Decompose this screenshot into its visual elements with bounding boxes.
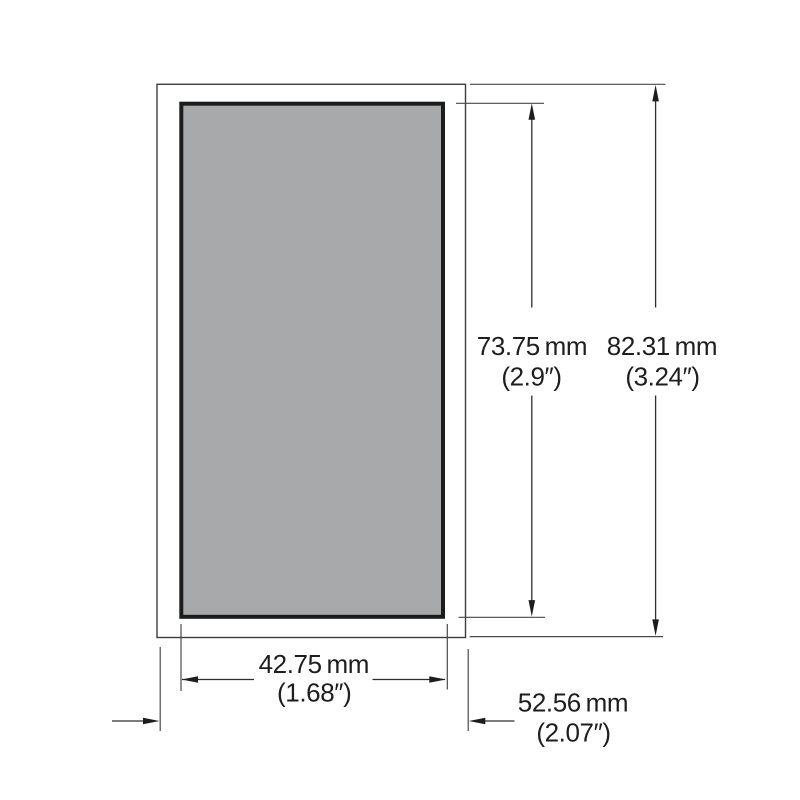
svg-text:52.56 mm: 52.56 mm: [518, 688, 628, 718]
svg-text:82.31 mm: 82.31 mm: [607, 331, 717, 361]
svg-text:(2.9″): (2.9″): [501, 362, 561, 392]
svg-text:(3.24″): (3.24″): [625, 362, 699, 392]
svg-text:73.75 mm: 73.75 mm: [477, 331, 587, 361]
svg-text:42.75 mm: 42.75 mm: [259, 649, 369, 679]
svg-text:(1.68″): (1.68″): [277, 678, 351, 708]
svg-text:(2.07″): (2.07″): [536, 718, 610, 748]
